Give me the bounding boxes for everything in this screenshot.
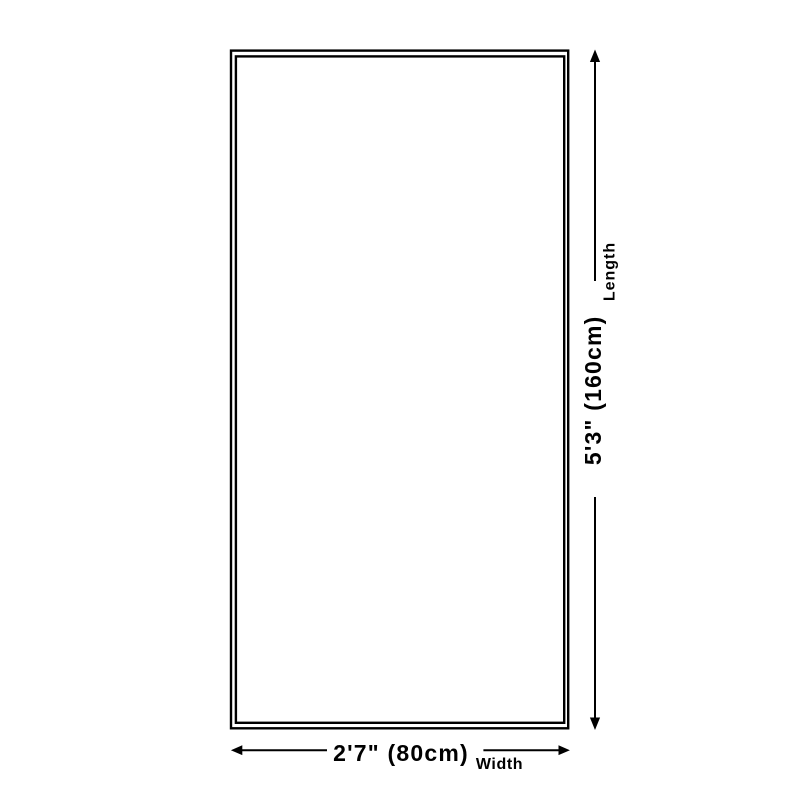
svg-text:Width: Width — [476, 756, 523, 773]
svg-text:5'3" (160cm): 5'3" (160cm) — [580, 315, 606, 465]
svg-text:2'7" (80cm): 2'7" (80cm) — [333, 740, 469, 766]
svg-text:Length: Length — [602, 242, 619, 301]
